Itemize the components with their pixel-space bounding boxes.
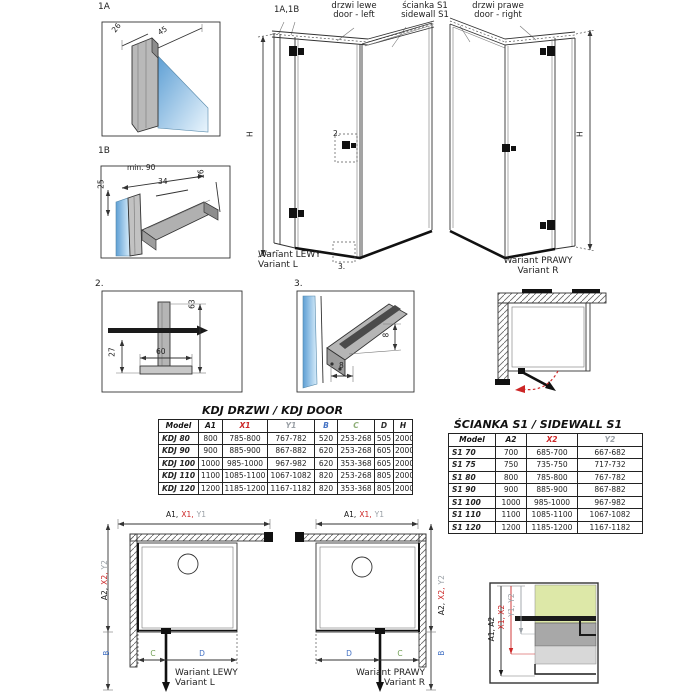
table-cell: 2000 [394,457,413,470]
detail-1b-dim-16: 16 [198,169,206,179]
table-cell: 867-882 [268,445,315,458]
table-cell: 1185-1200 [527,521,578,534]
table-cell: KDJ 80 [159,432,199,445]
table-row: KDJ 12012001185-12001167-1182820353-3688… [159,482,413,495]
table-cell: 667-682 [578,446,643,459]
plan-right-walls [295,532,426,667]
table-cell: KDJ 120 [159,482,199,495]
table-header-cell: A2 [496,434,527,447]
table-cell: 900 [199,445,223,458]
plan-right-dim-b: B [438,643,446,663]
plan-right-side-dims [426,524,436,690]
table-cell: 1067-1082 [578,509,643,522]
iso-left-h-dim [258,33,280,257]
detail-1b-dim-34: 34 [158,178,168,186]
door-left-label: drzwi lewe door - left [322,2,386,21]
table-cell: 1185-1200 [223,482,268,495]
table-cell: 717-732 [578,459,643,472]
table-cell: 1085-1100 [223,470,268,483]
iso-left-variant-label: Wariant LEWY Variant L [258,251,321,271]
iso-left-handle [342,141,356,149]
table-cell: 605 [375,445,394,458]
table-cell: 767-782 [578,471,643,484]
table-cell: 1167-1182 [578,521,643,534]
plan-right-dim-a1: A1, [344,510,356,519]
table-row: S1 80800785-800767-782 [449,471,643,484]
table-cell: 1000 [496,496,527,509]
corner-detail-layers [535,585,596,664]
table-cell: 253-268 [338,432,375,445]
detail-1a-ref: 1A [98,3,110,13]
plan-left-dim-x2: X2, [100,573,109,585]
table-header-cell: X2 [527,434,578,447]
table-cell: 967-982 [578,496,643,509]
table-cell: 685-700 [527,446,578,459]
plan-right-dim-x1: X1, [359,510,371,519]
plan-left-walls [130,532,273,667]
table-row: KDJ 11011001085-11001067-1082820253-2688… [159,470,413,483]
iso-right-h-label: H [577,131,585,137]
iso-left-detail3-marker [333,242,355,262]
plan-left-drain [178,554,198,574]
iso-right-fixed-panel [555,38,575,249]
door-left-label-en: door - left [322,11,386,20]
plan-left-enclosure [138,543,237,632]
table-row: S1 75750735-750717-732 [449,459,643,472]
table-cell: 2000 [394,432,413,445]
detail-3-glass [303,296,323,388]
table-cell: 785-800 [223,432,268,445]
door-table-title: KDJ DRZWI / KDJ DOOR [155,405,390,417]
detail-2-drawing [100,288,245,396]
table-cell: 1200 [199,482,223,495]
plan-left-dim-a1: A1, [166,510,178,519]
swing-plan-enclosure [508,303,590,371]
table-cell: 820 [315,470,338,483]
plan-right-side-dim-label: A2,X2,Y2 [438,560,446,630]
plan-right-variant-en: Variant R [330,679,425,689]
table-cell: 353-368 [338,457,375,470]
table-cell: 750 [496,459,527,472]
detail-1a-glass [158,56,208,132]
detail-1b-drawing [100,158,232,260]
plan-left-dim-d: D [193,650,211,658]
plan-right-dim-d: D [340,650,358,658]
plan-right-dim-y1: Y1 [375,510,384,519]
iso-right-handle [502,144,516,152]
detail-1b-bracket-arm [142,200,218,250]
plan-left-top-dim-label: A1,X1,Y1 [140,511,232,519]
plan-left-dim-y2: Y2 [100,560,109,569]
table-cell: S1 70 [449,446,496,459]
plan-left-top-dim [118,519,270,529]
table-cell: 967-982 [268,457,315,470]
table-row: S1 1001000985-1000967-982 [449,496,643,509]
table-header-cell: Y2 [578,434,643,447]
detail-3-dim-8-right: 8 [382,333,390,338]
table-cell: 1000 [199,457,223,470]
iso-left-drawing [250,0,450,285]
table-cell: 253-268 [338,470,375,483]
detail-2-wall-profile [140,302,192,374]
plan-right-variant-label: Wariant PRAWY Variant R [330,669,425,689]
table-cell: 785-800 [527,471,578,484]
swing-plan-door [515,368,558,393]
iso-right-top-bar [505,32,575,45]
iso-right-h-dim [576,30,595,251]
table-header-cell: X1 [223,420,268,433]
table-cell: 620 [315,457,338,470]
table-row: KDJ 80800785-800767-782520253-2685052000 [159,432,413,445]
table-cell: 353-368 [338,482,375,495]
detail-1b-ref: 1B [98,147,110,157]
table-cell: KDJ 110 [159,470,199,483]
door-right-label-en: door - right [466,11,530,20]
door-right-label: drzwi prawe door - right [466,2,530,21]
iso-left-top-bar [272,21,434,45]
swing-plan-drawing [492,283,627,408]
plan-left-variant-en: Variant L [175,679,238,689]
plan-right-top-dim [316,519,418,529]
table-cell: 820 [315,482,338,495]
table-cell: 885-900 [223,445,268,458]
corner-detail-dim-y-label: Y1, Y2 [508,585,516,625]
table-cell: 867-882 [578,484,643,497]
iso-left-sidewall [362,23,432,257]
table-cell: 805 [375,470,394,483]
table-cell: 520 [315,432,338,445]
plan-left-dim-y1: Y1 [197,510,206,519]
iso-detail-ref-1a1b: 1A,1B [274,6,299,15]
table-cell: 1067-1082 [268,470,315,483]
iso-right-variant-label: Wariant PRAWY Variant R [492,257,584,277]
table-header-cell: Y1 [268,420,315,433]
table-row: S1 90900885-900867-882 [449,484,643,497]
detail-2-dim-27: 27 [109,347,117,357]
table-cell: 2000 [394,445,413,458]
plan-right-enclosure [316,543,419,632]
technical-drawing-sheet: 1A 26 45 1B [0,0,700,700]
plan-right-dim-a2: A2, [437,603,446,615]
table-cell: S1 100 [449,496,496,509]
iso-right-drawing [448,0,628,285]
detail-1b-dim-25: 25 [98,179,106,189]
detail-3-dim-8-bottom: 8 [339,362,344,370]
plan-left-side-dim-label: A2,X2,Y2 [101,545,109,615]
plan-right-top-dim-label: A1,X1,Y1 [318,511,410,519]
corner-detail-dim-x-label: X1, X2 [498,597,506,637]
table-cell: 2000 [394,470,413,483]
sidewall-label-en: sidewall S1 [396,11,454,20]
table-cell: 1085-1100 [527,509,578,522]
table-header-cell: Model [159,420,199,433]
table-cell: S1 75 [449,459,496,472]
iso-right-hinges [540,46,555,230]
sidewall-table-title: ŚCIANKA S1 / SIDEWALL S1 [446,419,630,431]
sidewall-label: ścianka S1 sidewall S1 [396,2,454,21]
plan-left-dim-c: C [144,650,162,658]
detail-2-dim-60: 60 [156,348,166,356]
table-cell: 1100 [496,509,527,522]
iso-left-ref-3: 3. [338,263,345,271]
plan-right-dim-x2: X2, [437,588,446,600]
plan-left-dim-b: B [103,643,111,663]
iso-right-sidewall [450,18,505,230]
iso-left-ref-2: 2. [333,130,340,138]
table-cell: 253-268 [338,445,375,458]
table-header-cell: B [315,420,338,433]
table-header-cell: Model [449,434,496,447]
table-cell: 505 [375,432,394,445]
table-cell: 1167-1182 [268,482,315,495]
iso-left-hinges [289,46,304,218]
table-cell: S1 80 [449,471,496,484]
table-cell: 1200 [496,521,527,534]
iso-right-leader-lines [460,26,536,42]
table-row: KDJ 90900885-900867-882620253-2686052000 [159,445,413,458]
iso-left-variant-en: Variant L [258,261,321,271]
table-row: KDJ 1001000985-1000967-982620353-3686052… [159,457,413,470]
plan-right-drain [352,557,372,577]
detail-2-dim-63: 63 [189,299,197,309]
detail-1b-dim-min90: min. 90 [127,164,155,172]
table-cell: 2000 [394,482,413,495]
swing-arrow [515,385,525,393]
detail-1b-wall-profile [128,194,142,256]
table-cell: 605 [375,457,394,470]
detail-3-drawing [295,288,417,396]
table-cell: KDJ 90 [159,445,199,458]
plan-left-variant-label: Wariant LEWY Variant L [175,669,238,689]
table-cell: 767-782 [268,432,315,445]
detail-2-frame [102,291,242,392]
table-header-cell: D [375,420,394,433]
plan-right-dim-y2: Y2 [437,575,446,584]
table-header-cell: C [338,420,375,433]
iso-left-h-label: H [247,131,255,137]
table-cell: 700 [496,446,527,459]
table-cell: 800 [496,471,527,484]
iso-left-door-panel [295,37,360,257]
table-cell: 900 [496,484,527,497]
table-cell: 805 [375,482,394,495]
table-cell: KDJ 100 [159,457,199,470]
table-row: S1 70700685-700667-682 [449,446,643,459]
table-cell: S1 90 [449,484,496,497]
plan-left-dim-a2: A2, [100,588,109,600]
iso-right-bottom-edge [450,231,555,258]
table-header-cell: A1 [199,420,223,433]
plan-left-dim-x1: X1, [181,510,193,519]
table-cell: 985-1000 [223,457,268,470]
table-cell: 885-900 [527,484,578,497]
door-dimensions-table: ModelA1X1Y1BCDHKDJ 80800785-800767-78252… [158,419,413,495]
table-cell: 620 [315,445,338,458]
corner-detail-dim-a-label: A1, A2 [488,609,496,649]
table-header-cell: H [394,420,413,433]
table-cell: 1100 [199,470,223,483]
detail-1a-wall-profile [132,38,158,132]
iso-right-variant-en: Variant R [492,267,584,277]
table-cell: 985-1000 [527,496,578,509]
plan-right-dim-c: C [391,650,409,658]
table-cell: 735-750 [527,459,578,472]
table-cell: 800 [199,432,223,445]
